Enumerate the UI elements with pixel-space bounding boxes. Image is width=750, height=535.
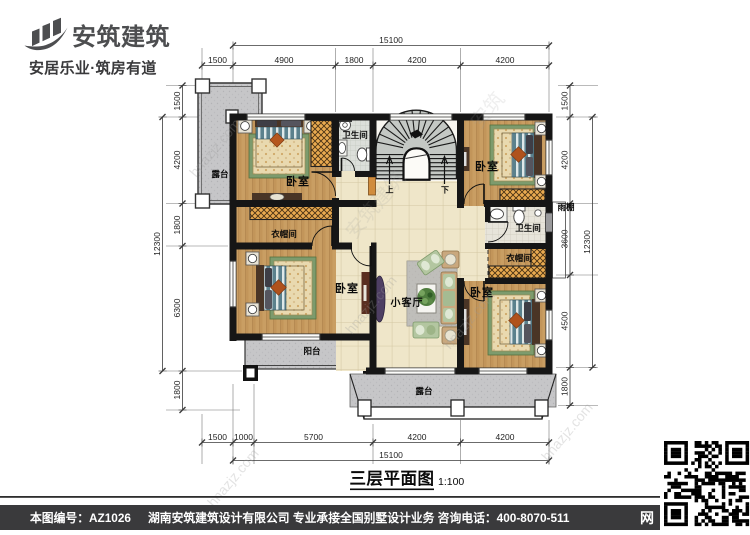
svg-text:4200: 4200 bbox=[408, 432, 427, 442]
svg-text:小客厅: 小客厅 bbox=[390, 296, 424, 309]
svg-text:6300: 6300 bbox=[172, 298, 182, 317]
svg-text:1800: 1800 bbox=[560, 377, 570, 396]
svg-text:露台: 露台 bbox=[415, 386, 433, 396]
svg-text:4200: 4200 bbox=[496, 432, 515, 442]
svg-text:1800: 1800 bbox=[345, 55, 364, 65]
svg-text:1000: 1000 bbox=[234, 432, 253, 442]
svg-text:5700: 5700 bbox=[304, 432, 323, 442]
svg-text:4200: 4200 bbox=[560, 150, 570, 169]
svg-text:三层平面图: 三层平面图 bbox=[350, 469, 435, 488]
svg-text:4900: 4900 bbox=[275, 55, 294, 65]
svg-text:4200: 4200 bbox=[172, 150, 182, 169]
svg-text:网: 网 bbox=[640, 510, 654, 526]
svg-text:卧室: 卧室 bbox=[475, 159, 499, 173]
svg-text:湖南安筑建筑设计有限公司 专业承接全国别墅设计业务 咨询电话: 湖南安筑建筑设计有限公司 专业承接全国别墅设计业务 咨询电话：400-8070-… bbox=[148, 511, 570, 525]
svg-text:阳台: 阳台 bbox=[303, 346, 321, 356]
svg-text:1500: 1500 bbox=[208, 432, 227, 442]
svg-text:衣帽间: 衣帽间 bbox=[271, 229, 297, 239]
svg-text:1500: 1500 bbox=[560, 91, 570, 110]
svg-text:卧室: 卧室 bbox=[335, 281, 359, 295]
svg-text:1500: 1500 bbox=[208, 55, 227, 65]
svg-text:下: 下 bbox=[441, 186, 449, 195]
svg-text:4200: 4200 bbox=[496, 55, 515, 65]
svg-text:1500: 1500 bbox=[172, 91, 182, 110]
svg-text:3600: 3600 bbox=[560, 229, 570, 248]
svg-text:1:100: 1:100 bbox=[438, 476, 464, 488]
svg-text:1800: 1800 bbox=[172, 380, 182, 399]
svg-text:安筑建筑: 安筑建筑 bbox=[72, 23, 170, 51]
svg-text:1800: 1800 bbox=[172, 215, 182, 234]
svg-text:卫生间: 卫生间 bbox=[342, 130, 368, 140]
svg-text:衣帽间: 衣帽间 bbox=[506, 253, 532, 263]
svg-text:卫生间: 卫生间 bbox=[515, 223, 541, 233]
svg-text:12300: 12300 bbox=[582, 230, 592, 254]
svg-text:4200: 4200 bbox=[408, 55, 427, 65]
svg-text:本图编号：AZ1026: 本图编号：AZ1026 bbox=[30, 511, 131, 525]
svg-text:露台: 露台 bbox=[211, 169, 229, 179]
svg-text:卧室: 卧室 bbox=[286, 174, 310, 188]
svg-text:4500: 4500 bbox=[560, 311, 570, 330]
svg-text:15100: 15100 bbox=[379, 35, 403, 45]
svg-text:安居乐业·筑房有道: 安居乐业·筑房有道 bbox=[29, 59, 157, 77]
svg-text:12300: 12300 bbox=[152, 232, 162, 256]
svg-text:15100: 15100 bbox=[379, 450, 403, 460]
svg-text:雨棚: 雨棚 bbox=[557, 202, 575, 212]
